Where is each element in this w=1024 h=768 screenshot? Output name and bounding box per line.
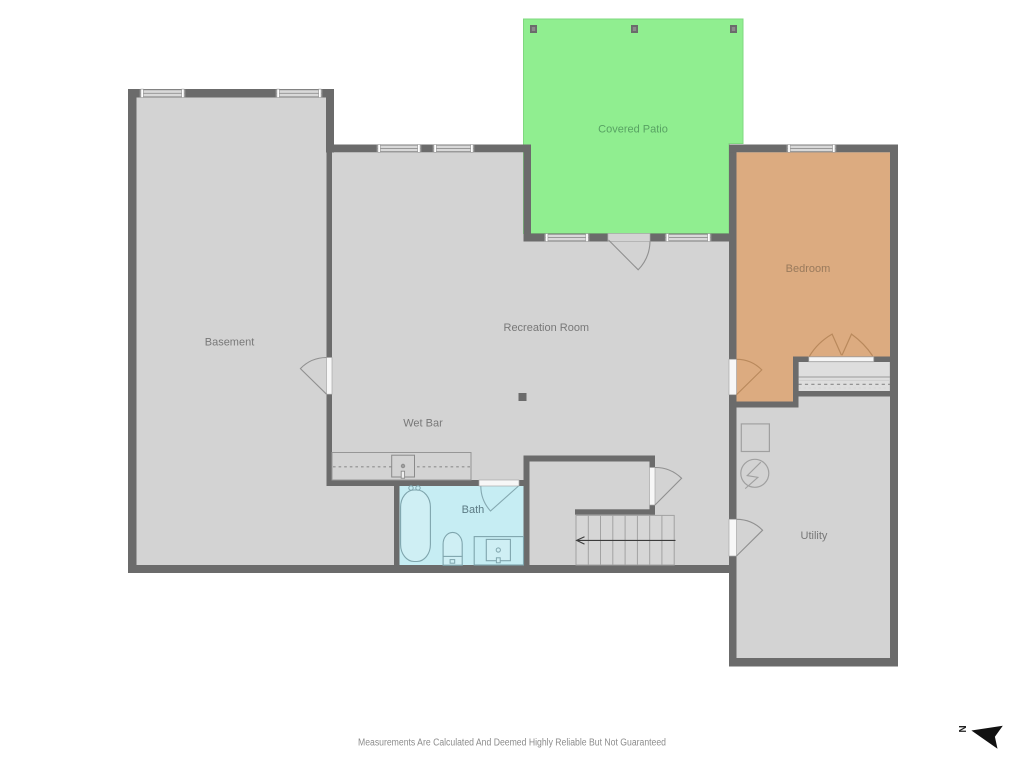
- svg-text:N: N: [956, 725, 967, 732]
- svg-text:Recreation Room: Recreation Room: [504, 322, 590, 334]
- svg-text:Covered Patio: Covered Patio: [598, 124, 668, 136]
- svg-text:Basement: Basement: [205, 337, 255, 349]
- svg-text:Utility: Utility: [801, 530, 828, 542]
- svg-text:Wet Bar: Wet Bar: [403, 418, 443, 430]
- svg-text:Measurements Are Calculated An: Measurements Are Calculated And Deemed H…: [358, 738, 666, 749]
- svg-text:Bedroom: Bedroom: [786, 263, 831, 275]
- svg-text:Bath: Bath: [462, 504, 485, 516]
